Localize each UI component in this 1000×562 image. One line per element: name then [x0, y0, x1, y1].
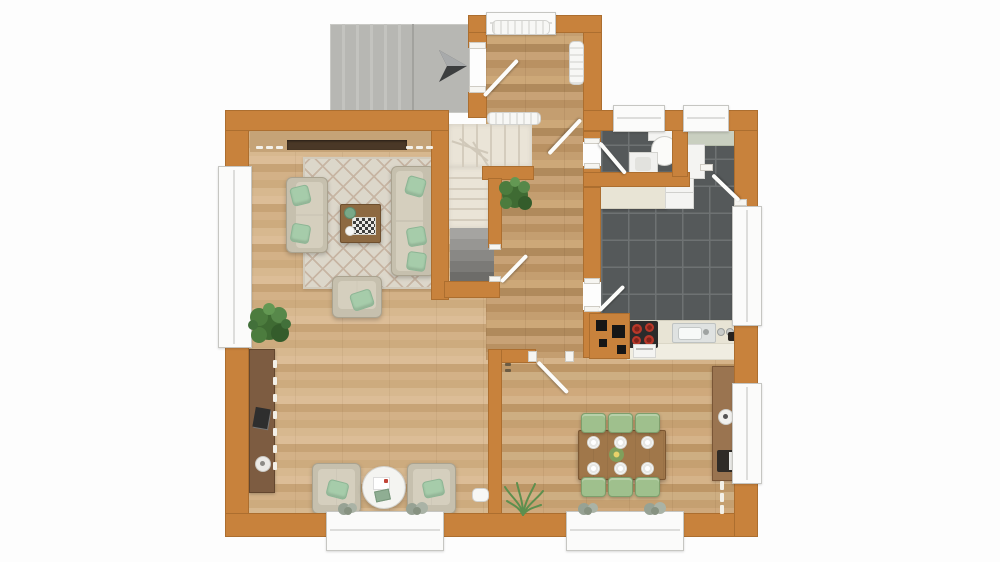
- staircase-upper-flight: [448, 124, 532, 167]
- door-jamb: [565, 351, 574, 362]
- chimney-niche: [612, 325, 625, 338]
- dining-chair: [581, 477, 606, 497]
- wall-mark: [273, 360, 277, 368]
- green-cup: [344, 207, 356, 219]
- wall-mark: [406, 146, 413, 149]
- plate: [614, 436, 627, 449]
- sofa-pillow: [406, 251, 427, 272]
- wall-exterior-top-right: [583, 110, 758, 131]
- sofa-pillow: [405, 225, 427, 247]
- window-dining-right: [732, 383, 762, 484]
- radiator-entry: [569, 41, 584, 85]
- wall-mark: [273, 462, 277, 470]
- windowsill-plant-icon: [336, 501, 360, 516]
- wall-mark: [273, 394, 277, 402]
- armchair-center: [332, 276, 382, 318]
- wall-stairs-left: [431, 130, 449, 300]
- coffee-table: [340, 204, 381, 243]
- bowl: [255, 456, 271, 472]
- wall-desk: [249, 349, 275, 493]
- window-living-bottom: [326, 511, 444, 551]
- stair-tread: [448, 219, 489, 221]
- plate: [614, 462, 627, 475]
- dining-chair: [608, 477, 633, 497]
- door-jamb: [700, 164, 713, 171]
- kitchen-sink: [672, 323, 716, 343]
- round-side-table: [362, 466, 406, 509]
- potted-plant-icon: [495, 174, 535, 216]
- stair-tread: [448, 208, 489, 210]
- windowsill-plant-icon: [642, 501, 670, 516]
- wall-mark: [273, 428, 277, 436]
- door-jamb: [584, 163, 600, 169]
- plate: [587, 462, 600, 475]
- wall-partition-vertical: [488, 349, 502, 517]
- wall-kitchen-left-a: [583, 187, 601, 282]
- faucet: [703, 329, 709, 335]
- chessboard: [352, 217, 376, 235]
- chimney-niche: [617, 345, 626, 354]
- wall-exterior-top-left: [225, 110, 449, 131]
- wall-mark: [273, 445, 277, 453]
- wall-mark: [276, 146, 283, 149]
- wall-mark: [505, 363, 511, 366]
- stair-tread: [518, 124, 520, 167]
- windowsill-plant-icon: [404, 501, 432, 516]
- wall-mark: [416, 146, 423, 149]
- plate: [641, 462, 654, 475]
- dining-chair: [635, 477, 660, 497]
- booklet: [374, 489, 391, 503]
- potted-plant-icon: [246, 297, 292, 352]
- sofa-left: [286, 177, 328, 253]
- window-kitchen-top: [683, 105, 729, 132]
- door-jamb: [584, 278, 600, 284]
- dining-chair: [608, 413, 633, 433]
- window-kitchen-right: [732, 206, 762, 326]
- dining-chair: [581, 413, 606, 433]
- window-bathroom: [613, 105, 665, 132]
- wall-mark: [720, 481, 724, 490]
- wall-thermostat: [472, 488, 489, 502]
- window-dining-bottom: [566, 511, 684, 551]
- plate: [587, 436, 600, 449]
- entrance-arrow-icon: [438, 49, 468, 83]
- stairs-landing-sill: [487, 112, 541, 125]
- grass-plant-icon: [501, 479, 546, 518]
- wall-bathroom-right: [672, 127, 688, 177]
- windowsill-plant-icon: [576, 501, 602, 516]
- door-jamb: [469, 42, 486, 49]
- radiator-hall: [492, 20, 550, 35]
- door-jamb: [584, 138, 600, 144]
- chimney-niche: [599, 339, 607, 347]
- wall-mark: [266, 146, 273, 149]
- wall-mark: [505, 369, 511, 372]
- sofa-pillow: [289, 222, 311, 244]
- plate: [641, 436, 654, 449]
- chimney-niche: [596, 320, 607, 331]
- tv-screen: [287, 140, 407, 150]
- decor-sphere: [345, 226, 355, 236]
- wall-mark: [273, 377, 277, 385]
- door-jamb: [489, 276, 501, 282]
- door-jamb: [489, 244, 501, 250]
- door-jamb: [528, 351, 537, 362]
- stair-tread: [448, 188, 489, 190]
- wall-mark: [426, 146, 433, 149]
- porch-step: [398, 24, 414, 113]
- wall-mark: [720, 493, 724, 502]
- stair-tread: [448, 198, 489, 200]
- wall-mark: [273, 411, 277, 419]
- dining-chair: [635, 413, 660, 433]
- floor-plan: [0, 0, 1000, 562]
- wall-mark: [720, 505, 724, 514]
- oven-front: [633, 344, 656, 358]
- knob: [717, 328, 725, 336]
- stair-tread: [504, 124, 506, 167]
- wall-stairs-bottom: [444, 281, 500, 298]
- table-centerpiece: [609, 447, 624, 462]
- stair-tread: [490, 124, 492, 167]
- sofa-right: [391, 166, 435, 276]
- wall-mark: [256, 146, 263, 149]
- laptop: [252, 407, 270, 429]
